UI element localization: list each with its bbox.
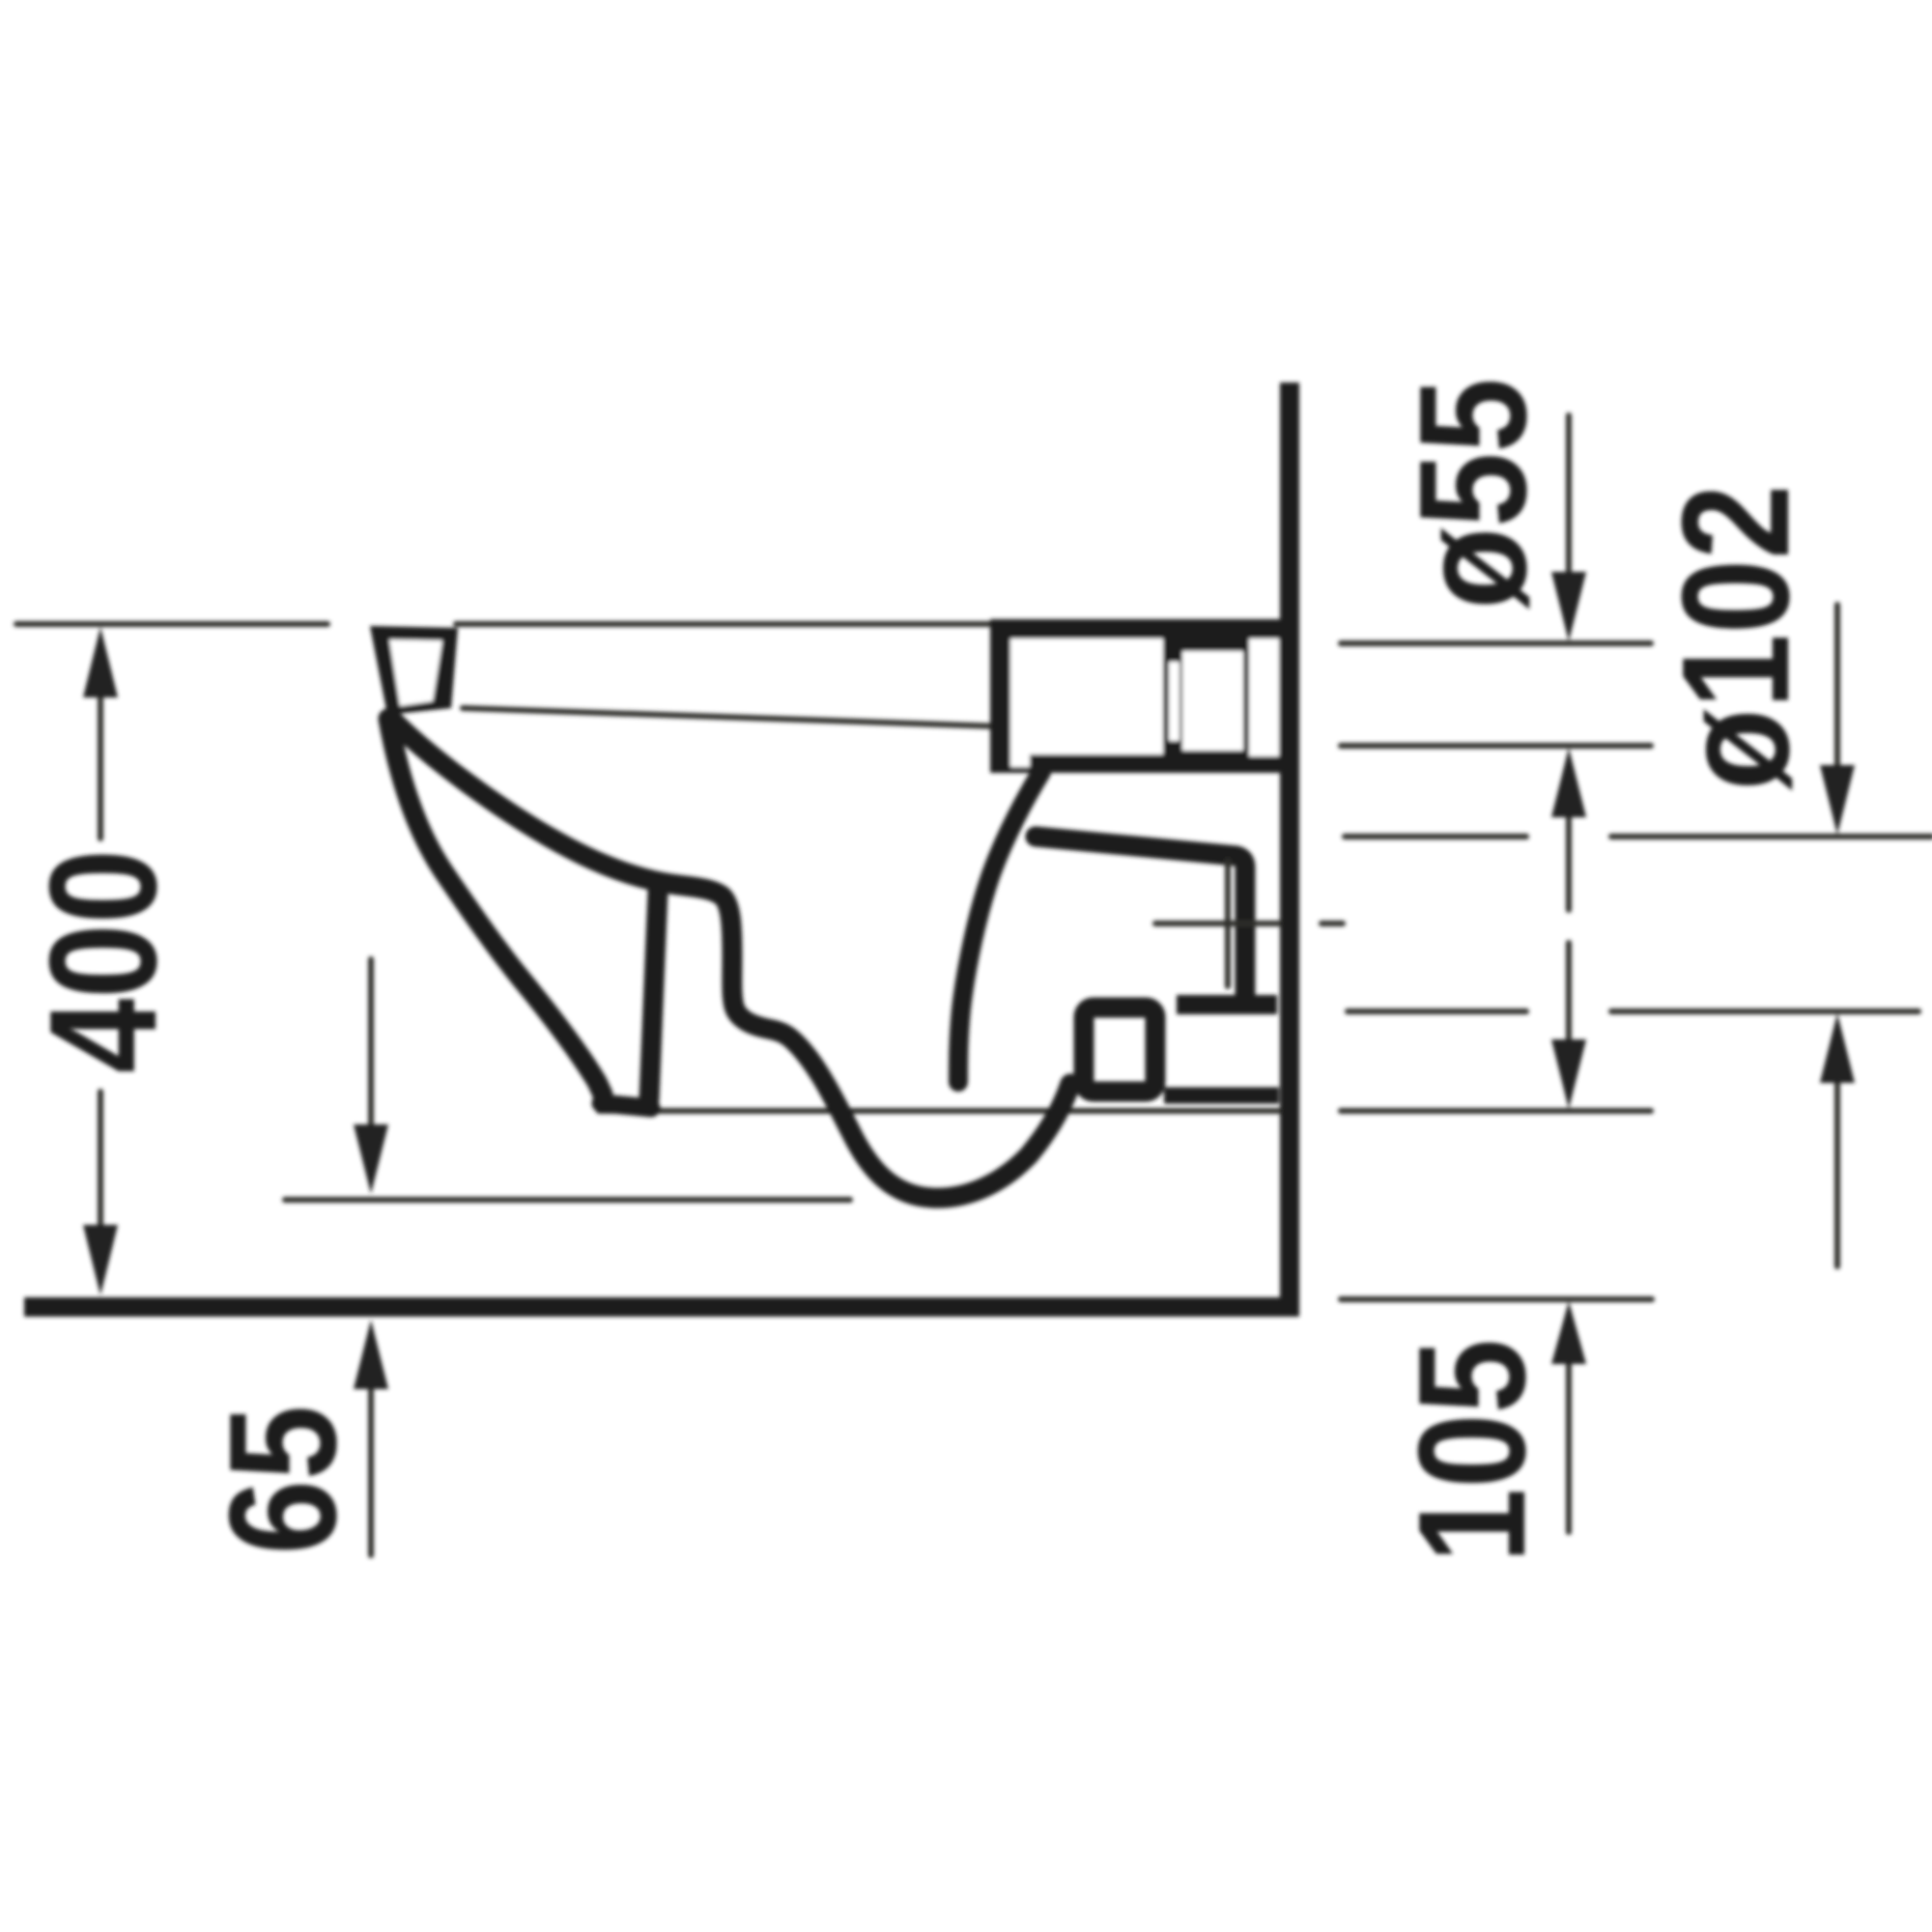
svg-text:ø102: ø102	[1650, 485, 1821, 791]
svg-text:ø55: ø55	[1387, 378, 1558, 610]
svg-text:400: 400	[17, 849, 188, 1073]
svg-text:105: 105	[1386, 1339, 1557, 1563]
svg-text:65: 65	[197, 1406, 368, 1555]
